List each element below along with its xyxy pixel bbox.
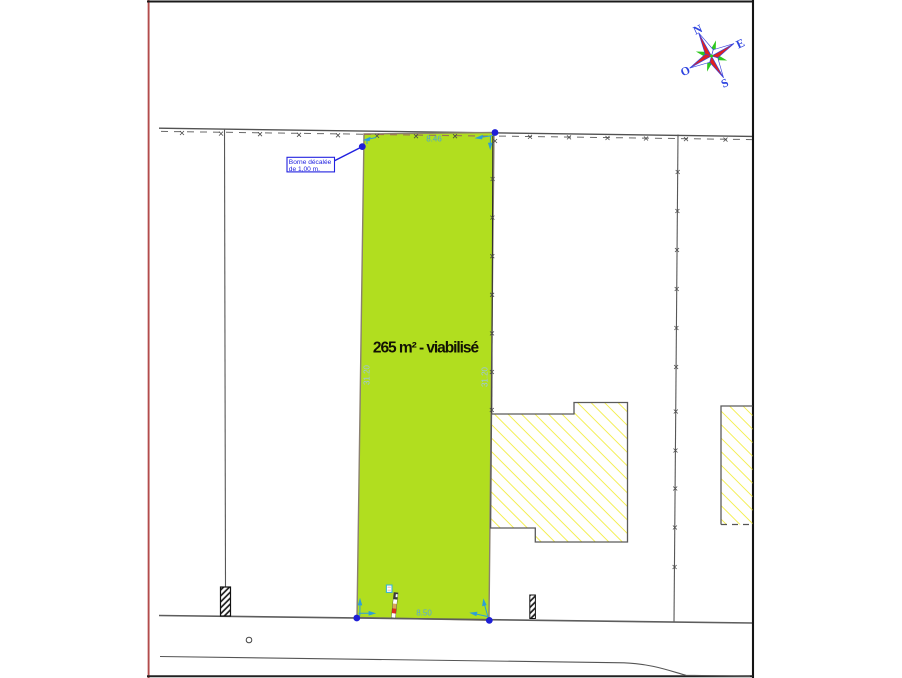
svg-text:de 1,00 m.: de 1,00 m. xyxy=(289,166,320,173)
svg-text:31.20: 31.20 xyxy=(363,364,372,385)
svg-text:8.50: 8.50 xyxy=(416,609,432,618)
svg-text:31.20: 31.20 xyxy=(481,366,490,387)
svg-text:265 m² - viabilisé: 265 m² - viabilisé xyxy=(373,340,480,357)
svg-text:8.46: 8.46 xyxy=(426,135,442,144)
